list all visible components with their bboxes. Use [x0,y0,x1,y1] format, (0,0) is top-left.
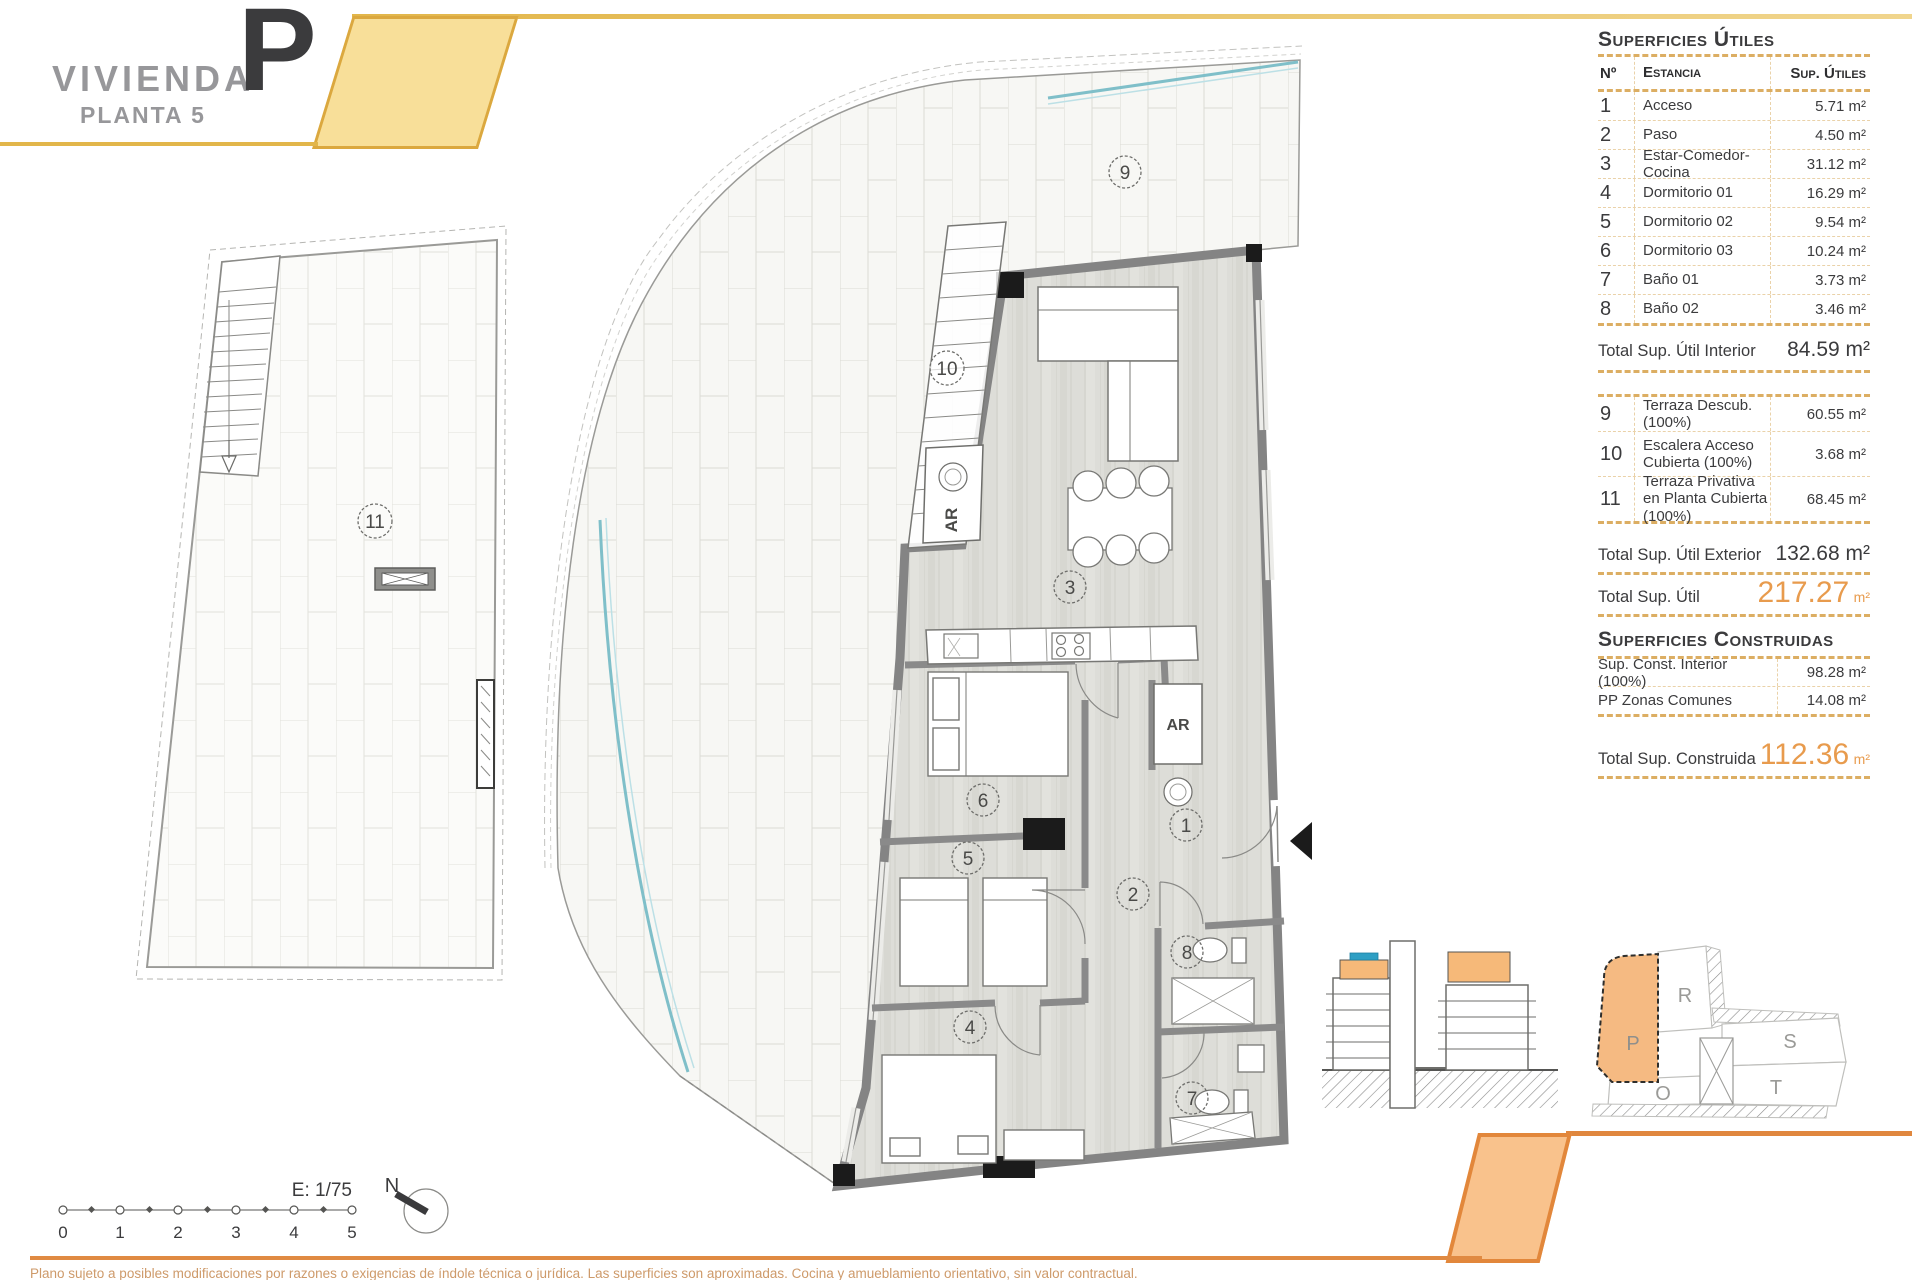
footer-disclaimer: Plano sujeto a posibles modificaciones p… [30,1266,1630,1280]
total-construida-unit: m² [1854,751,1870,767]
row-num: 7 [1598,266,1634,294]
row-area: 3.73 m² [1770,266,1870,294]
row-room: Terraza Privativa en Planta Cubierta (10… [1634,477,1770,521]
north-arrow: N [385,1175,448,1233]
entry-arrow-icon [1290,822,1312,860]
table-row: 10Escalera Acceso Cubierta (100%)3.68 m² [1598,432,1870,477]
floor-subtitle: PLANTA 5 [80,102,206,129]
row-num: 10 [1598,432,1634,476]
total-util-label: Total Sup. Útil [1598,588,1700,607]
row-room: Escalera Acceso Cubierta (100%) [1634,432,1770,476]
col-header-area: Sup. Útiles [1770,57,1870,89]
table-row: 11Terraza Privativa en Planta Cubierta (… [1598,477,1870,521]
divider [1598,370,1870,373]
site-key-letter-t: T [1770,1077,1782,1099]
total-interior-label: Total Sup. Útil Interior [1598,342,1756,361]
section-highlight-right [1448,952,1510,982]
scale-bar: 0 1 2 3 4 5 E: 1/75 [58,1180,356,1242]
svg-text:6: 6 [978,791,989,812]
table-header-row: Nº Estancia Sup. Útiles [1598,57,1870,92]
row-value: 14.08 m² [1777,687,1870,714]
divider [1598,614,1870,617]
surfaces-utiles-title: Superficies Útiles [1598,28,1775,52]
row-area: 68.45 m² [1770,477,1870,521]
row-num: 3 [1598,150,1634,178]
row-value: 98.28 m² [1777,659,1870,686]
site-key-letter-o: O [1655,1083,1671,1105]
col-header-room: Estancia [1634,57,1770,89]
dining-set [1068,466,1172,567]
site-key-letter-s: S [1783,1031,1796,1053]
row-label: PP Zonas Comunes [1598,687,1777,714]
total-exterior: Total Sup. Útil Exterior 132.68 m² [1598,542,1870,566]
total-util: Total Sup. Útil 217.27 m² [1598,576,1870,610]
site-key-letter-r: R [1678,985,1692,1007]
scale-label: E: 1/75 [292,1180,352,1201]
table-row: 9Terraza Descub.(100%)60.55 m² [1598,397,1870,432]
section-pool-blue [1350,953,1378,960]
svg-text:3: 3 [1065,578,1076,599]
site-key-diagram: P R S T O [1592,946,1846,1118]
row-area: 16.29 m² [1770,179,1870,207]
svg-text:7: 7 [1187,1089,1198,1110]
row-area: 3.46 m² [1770,295,1870,323]
top-accent-line [352,14,1912,19]
row-label: Sup. Const. Interior (100%) [1598,659,1777,686]
row-num: 8 [1598,295,1634,323]
table-row: 6Dormitorio 0310.24 m² [1598,237,1870,266]
surfaces-construidas-table: Sup. Const. Interior (100%)98.28 m² PP Z… [1598,656,1870,717]
total-construida-label: Total Sup. Construida [1598,750,1756,769]
site-key-letter-p: P [1626,1033,1639,1055]
row-room: Dormitorio 01 [1634,179,1770,207]
scale-tick-labels: 0 1 2 3 4 5 [58,1223,356,1242]
page-title: VIVIENDA [52,58,254,100]
svg-text:0: 0 [58,1223,67,1242]
table-row: 4Dormitorio 0116.29 m² [1598,179,1870,208]
wardrobe [1004,1130,1084,1160]
row-num: 11 [1598,477,1634,521]
row-area: 31.12 m² [1770,150,1870,178]
table-row: Sup. Const. Interior (100%)98.28 m² [1598,659,1870,687]
title-underline [0,142,318,146]
surfaces-construidas-title: Superficies Construidas [1598,628,1834,652]
row-room: Dormitorio 03 [1634,237,1770,265]
section-ground-hatch [1322,1070,1558,1108]
row-area: 10.24 m² [1770,237,1870,265]
section-core [1390,941,1415,1108]
bottom-right-accent-line [1566,1131,1912,1136]
svg-text:9: 9 [1120,163,1131,184]
table-row: 7Baño 013.73 m² [1598,266,1870,295]
total-util-value: 217.27 m² [1757,576,1870,610]
roof-access-hatch [477,680,494,788]
bed-dormitorio-03 [928,672,1068,776]
total-util-unit: m² [1854,589,1870,605]
total-interior: Total Sup. Útil Interior 84.59 m² [1598,338,1870,362]
total-interior-value: 84.59 m² [1787,338,1870,362]
row-num: 1 [1598,92,1634,120]
kitchen-counter [926,626,1198,664]
roof-terrace-plan: 11 [136,226,506,980]
row-area: 3.68 m² [1770,432,1870,476]
total-util-number: 217.27 [1757,576,1849,609]
row-area: 60.55 m² [1770,397,1870,431]
table-row: 2Paso4.50 m² [1598,121,1870,150]
ar-closet-stairs: AR [923,445,983,543]
ar-label-2: AR [1166,717,1190,734]
total-construida-number: 112.36 [1760,738,1850,771]
svg-text:3: 3 [231,1223,240,1242]
north-label: N [385,1175,399,1197]
row-room: Baño 02 [1634,295,1770,323]
svg-text:4: 4 [289,1223,298,1242]
roof-skylight [375,568,435,590]
row-num: 2 [1598,121,1634,149]
surfaces-utiles-table: Nº Estancia Sup. Útiles 1Acceso5.71 m² 2… [1598,54,1870,326]
divider [1598,776,1870,779]
svg-text:8: 8 [1182,943,1193,964]
row-area: 9.54 m² [1770,208,1870,236]
svg-text:2: 2 [173,1223,182,1242]
table-row: PP Zonas Comunes14.08 m² [1598,687,1870,714]
site-key-unit-p [1597,954,1658,1082]
svg-text:4: 4 [965,1018,976,1039]
row-num: 5 [1598,208,1634,236]
room-label-10: 10 [930,351,964,385]
roof-terrace-floor [147,240,497,968]
section-highlight-left [1340,960,1388,979]
apartment-plan: AR AR [545,46,1312,1186]
row-room: Baño 01 [1634,266,1770,294]
surfaces-exterior-table: 9Terraza Descub.(100%)60.55 m² 10Escaler… [1598,394,1870,524]
total-construida-value: 112.36 m² [1760,738,1870,772]
table-row: 8Baño 023.46 m² [1598,295,1870,323]
row-area: 5.71 m² [1770,92,1870,120]
ar-label-1: AR [942,508,961,533]
row-room: Dormitorio 02 [1634,208,1770,236]
row-room: Terraza Descub.(100%) [1634,397,1770,431]
table-row: 5Dormitorio 029.54 m² [1598,208,1870,237]
divider [1598,572,1870,575]
col-header-num: Nº [1598,57,1634,89]
svg-text:5: 5 [963,849,974,870]
svg-text:1: 1 [1181,816,1192,837]
table-row: 3Estar-Comedor-Cocina31.12 m² [1598,150,1870,179]
total-exterior-value: 132.68 m² [1775,542,1870,566]
row-area: 4.50 m² [1770,121,1870,149]
footer-accent-line [30,1256,1482,1260]
row-room: Paso [1634,121,1770,149]
building-section-diagram [1322,941,1558,1108]
row-num: 4 [1598,179,1634,207]
row-room: Acceso [1634,92,1770,120]
row-room: Estar-Comedor-Cocina [1634,150,1770,178]
svg-text:10: 10 [936,359,957,380]
page: 11 [0,0,1920,1280]
row-num: 6 [1598,237,1634,265]
svg-text:1: 1 [115,1223,124,1242]
unit-letter: P [238,0,317,116]
table-row: 1Acceso5.71 m² [1598,92,1870,121]
total-construida: Total Sup. Construida 112.36 m² [1598,738,1870,772]
total-exterior-label: Total Sup. Útil Exterior [1598,546,1761,565]
row-num: 9 [1598,397,1634,431]
svg-text:2: 2 [1128,885,1139,906]
svg-text:5: 5 [347,1223,356,1242]
room-number-11: 11 [365,512,385,533]
